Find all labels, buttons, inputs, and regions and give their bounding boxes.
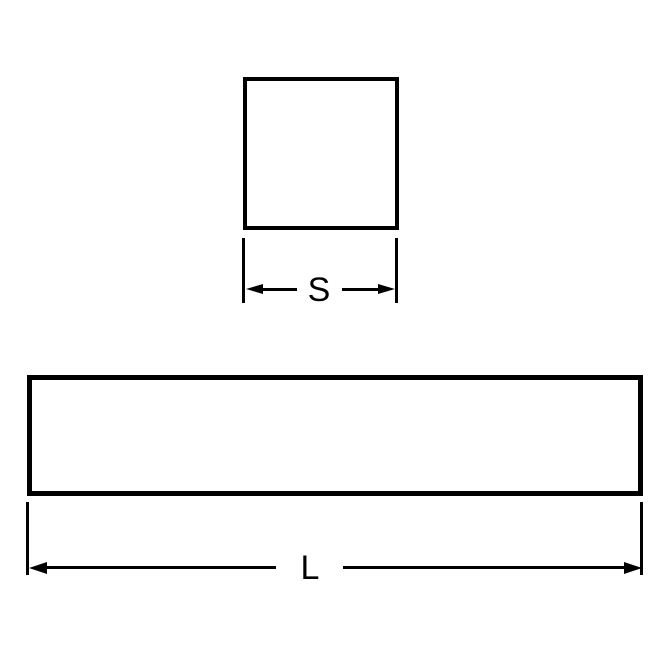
l-dimension-line-left <box>45 566 276 569</box>
s-extension-line-left <box>242 238 245 303</box>
l-arrowhead-right-icon <box>624 562 642 574</box>
technical-drawing-canvas: S L <box>0 0 670 670</box>
s-extension-line-right <box>395 238 398 303</box>
s-arrowhead-right-icon <box>378 284 395 294</box>
s-dimension-line-left <box>261 288 297 291</box>
square-cross-section-outline <box>243 77 399 230</box>
dimension-label-length: L <box>297 551 324 585</box>
dimension-label-side: S <box>304 273 335 307</box>
bar-length-outline <box>27 375 643 496</box>
l-dimension-line-right <box>343 566 624 569</box>
s-dimension-line-right <box>342 288 379 291</box>
